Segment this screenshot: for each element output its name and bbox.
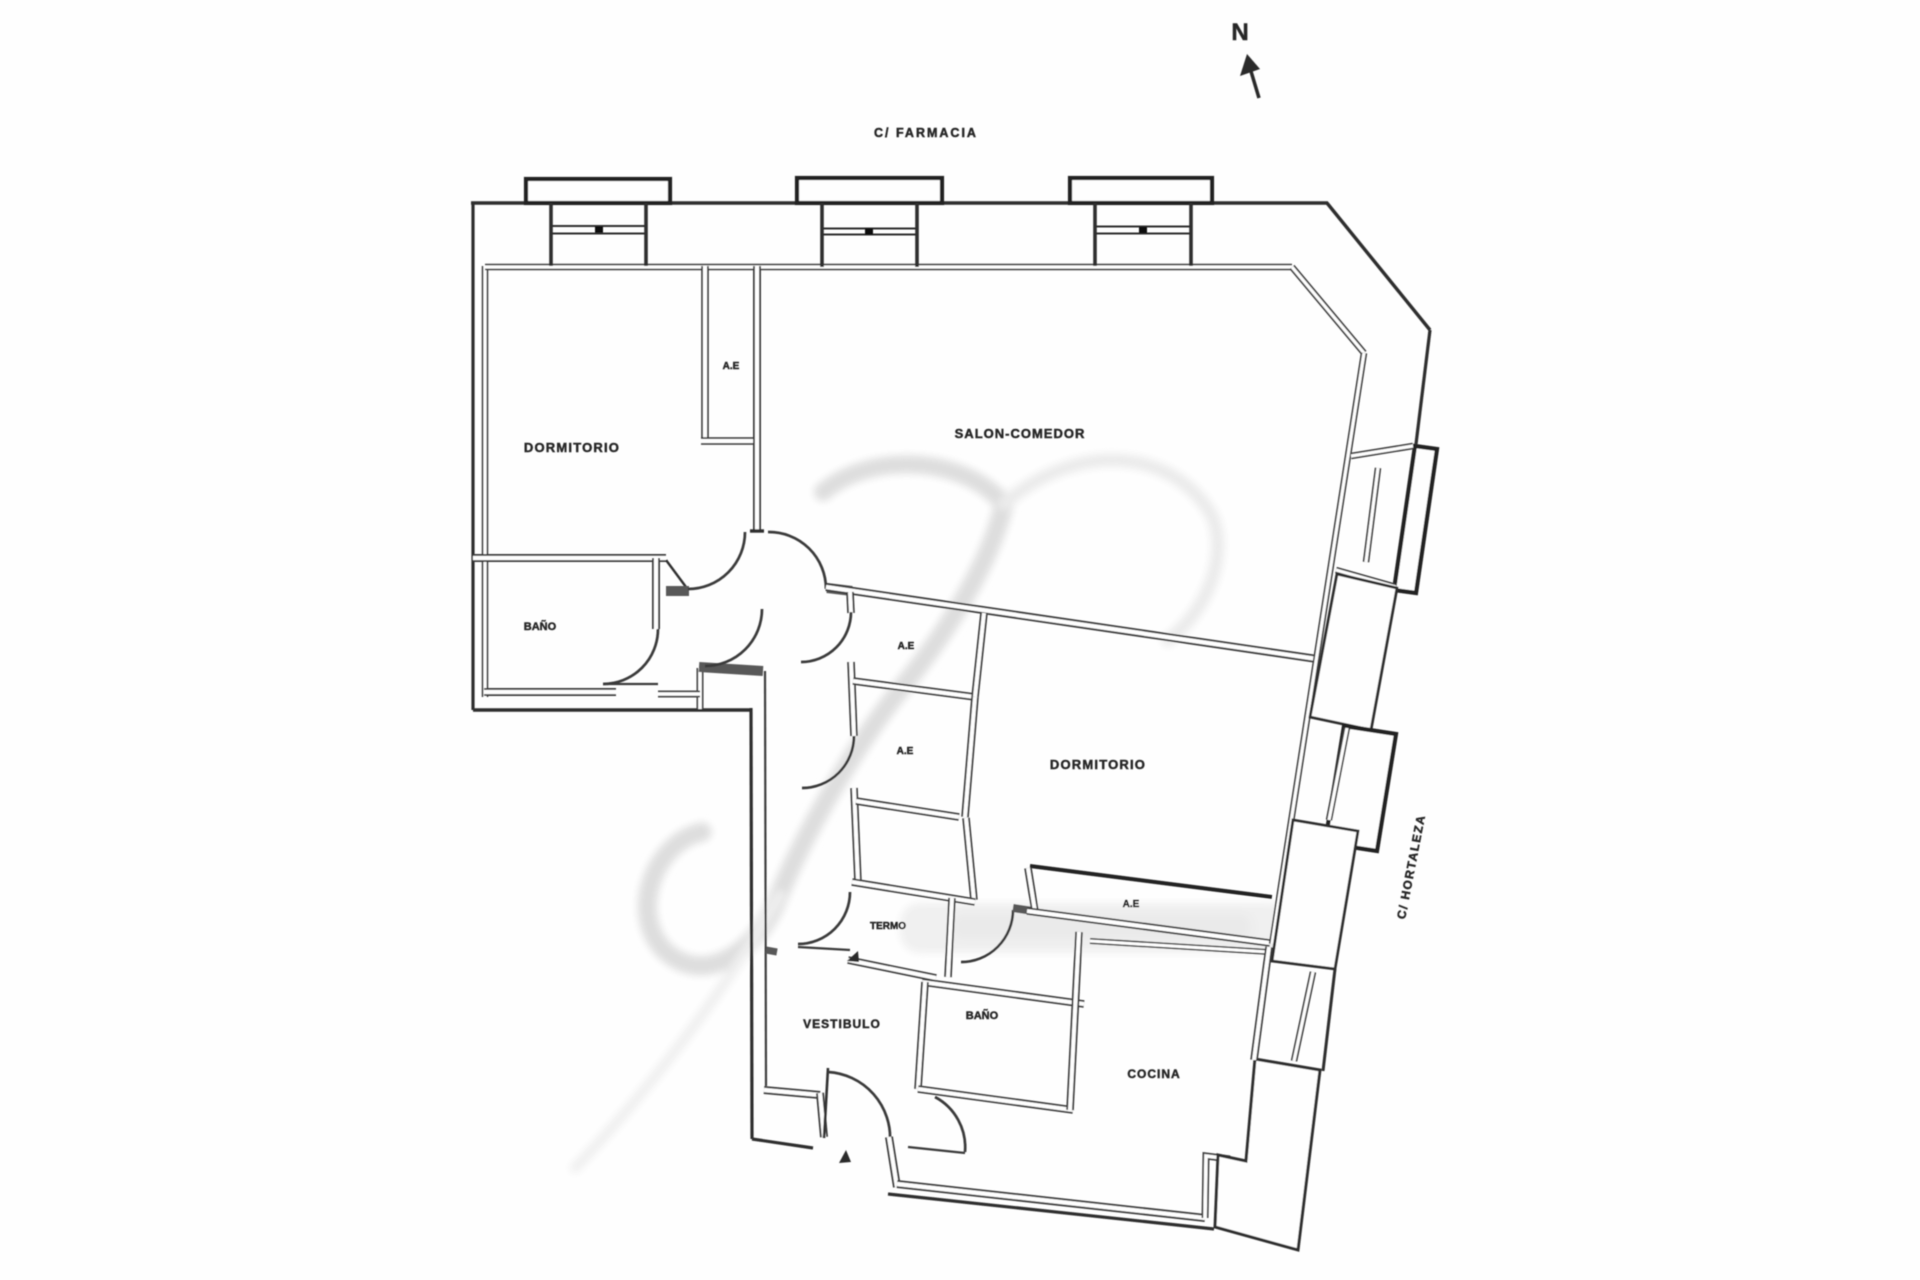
svg-text:N: N (1231, 19, 1248, 46)
svg-text:A.E: A.E (723, 361, 740, 372)
svg-text:A.E: A.E (898, 641, 915, 652)
svg-text:BAÑO: BAÑO (966, 1009, 999, 1022)
svg-text:VESTIBULO: VESTIBULO (803, 1017, 881, 1031)
svg-text:A.E: A.E (1123, 899, 1140, 910)
svg-text:SALON-COMEDOR: SALON-COMEDOR (955, 426, 1086, 441)
svg-text:DORMITORIO: DORMITORIO (524, 440, 620, 455)
svg-text:C/ FARMACIA: C/ FARMACIA (874, 126, 978, 140)
svg-text:A.E: A.E (897, 746, 914, 757)
svg-text:DORMITORIO: DORMITORIO (1050, 757, 1146, 772)
svg-text:BAÑO: BAÑO (524, 620, 557, 633)
svg-text:COCINA: COCINA (1127, 1067, 1180, 1081)
svg-text:TERMO: TERMO (870, 921, 906, 932)
